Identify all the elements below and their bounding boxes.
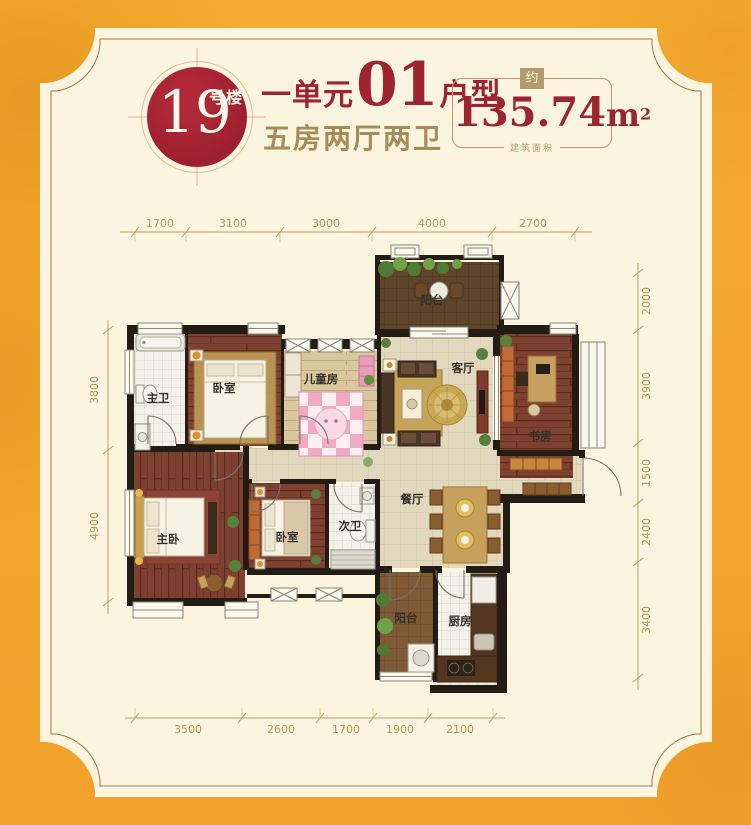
bay-window (133, 602, 183, 618)
plant (377, 618, 393, 634)
dim-label: 1900 (386, 723, 414, 736)
sliding-door (410, 327, 468, 338)
plant (363, 457, 373, 467)
kitchen-sink (474, 634, 494, 650)
planter-box (464, 245, 492, 258)
flyer-page: { "header": { "badge": { "number": "19",… (0, 0, 751, 825)
shoe-bench (523, 483, 571, 495)
bookshelf (502, 346, 514, 422)
area-unit-power: 2 (640, 105, 651, 124)
bathtub (136, 334, 185, 351)
room-label-master-bath: 主卫 (147, 391, 170, 405)
ac-unit-symbol (501, 282, 519, 319)
room-label-study: 书房 (529, 429, 552, 443)
area-value: 135.74m2 (453, 89, 611, 136)
nightstand (255, 559, 265, 569)
dim-label: 2700 (519, 217, 547, 230)
shower-area (331, 550, 375, 569)
high-window-symbol (316, 588, 342, 601)
bed (194, 352, 276, 444)
dim-label: 1500 (640, 459, 653, 487)
area-number: 135.74 (453, 89, 606, 136)
room-label-balcony-south: 阳台 (395, 611, 418, 625)
plant (377, 644, 389, 656)
building-number: 19 (158, 75, 232, 150)
dim-label: 3500 (174, 723, 202, 736)
window-opening (493, 356, 500, 440)
plant (311, 555, 321, 565)
fridge (472, 577, 496, 603)
dim-label: 1700 (146, 217, 174, 230)
dim-label: 3100 (219, 217, 247, 230)
kids-rug (299, 392, 363, 456)
plant (311, 489, 321, 499)
building-number-suffix: 号楼 (209, 84, 243, 108)
round-rug (427, 385, 467, 425)
bench (510, 458, 562, 470)
window (125, 350, 134, 394)
approx-tag: 约 (520, 68, 544, 89)
stove (447, 660, 475, 676)
room-label-kids-room: 儿童房 (303, 372, 339, 386)
plant (381, 338, 391, 348)
master-bed (135, 489, 220, 565)
plant (500, 335, 512, 347)
dim-label: 4900 (88, 512, 101, 540)
wardrobe (249, 500, 260, 560)
dim-label: 3400 (640, 606, 653, 634)
bay-window (225, 602, 258, 618)
planter-box (391, 245, 419, 258)
bay-window (581, 342, 605, 448)
room-label-dining-room: 餐厅 (400, 492, 424, 506)
area-unit: m (606, 96, 640, 134)
window (550, 323, 576, 334)
plant (376, 593, 390, 607)
layout-subtitle: 五房两厅两卫 (263, 117, 443, 157)
room-label-kitchen: 厨房 (449, 614, 472, 628)
tv-console (477, 371, 488, 433)
nightstand (255, 487, 265, 497)
plant (476, 348, 488, 360)
plant (479, 434, 491, 446)
window (138, 323, 182, 334)
dim-label: 2600 (267, 723, 295, 736)
nightstand (190, 350, 203, 361)
dim-label: 2100 (446, 723, 474, 736)
room-label-second-bath: 次卫 (339, 519, 362, 533)
kids-wardrobe (285, 353, 301, 397)
high-window-symbol (286, 339, 310, 352)
room-label-master-bedroom: 主卧 (157, 532, 180, 546)
area-caption: 建筑面积 (504, 141, 560, 154)
plant (227, 516, 239, 528)
high-window-symbol (350, 339, 374, 352)
dim-label: 3800 (88, 376, 101, 404)
plant (364, 375, 374, 385)
window (380, 672, 432, 681)
room-label-living-room: 客厅 (451, 361, 475, 375)
washing-machine (408, 644, 434, 672)
room-label-balcony-north: 阳台 (421, 293, 444, 307)
bed (262, 500, 310, 556)
dim-label: 1700 (332, 723, 360, 736)
unit-title-prefix: 一单元 (261, 70, 354, 114)
unit-number: 01 (354, 57, 440, 114)
area-box: 约 135.74m2 建筑面积 (452, 78, 612, 148)
dim-label: 2400 (640, 518, 653, 546)
dim-label: 3000 (312, 217, 340, 230)
dim-label: 4000 (418, 217, 446, 230)
dim-label: 2000 (640, 287, 653, 315)
window (248, 323, 278, 334)
dining-set (430, 487, 500, 563)
building-badge: 19 号楼 (147, 67, 247, 167)
window (125, 490, 134, 556)
room-label-bedroom-b: 卧室 (276, 530, 299, 544)
high-window-symbol (318, 339, 342, 352)
nightstand (190, 430, 203, 441)
dim-label: 3900 (640, 372, 653, 400)
plant (229, 560, 241, 572)
room-label-bedroom-a: 卧室 (213, 381, 236, 395)
high-window-symbol (271, 588, 297, 601)
